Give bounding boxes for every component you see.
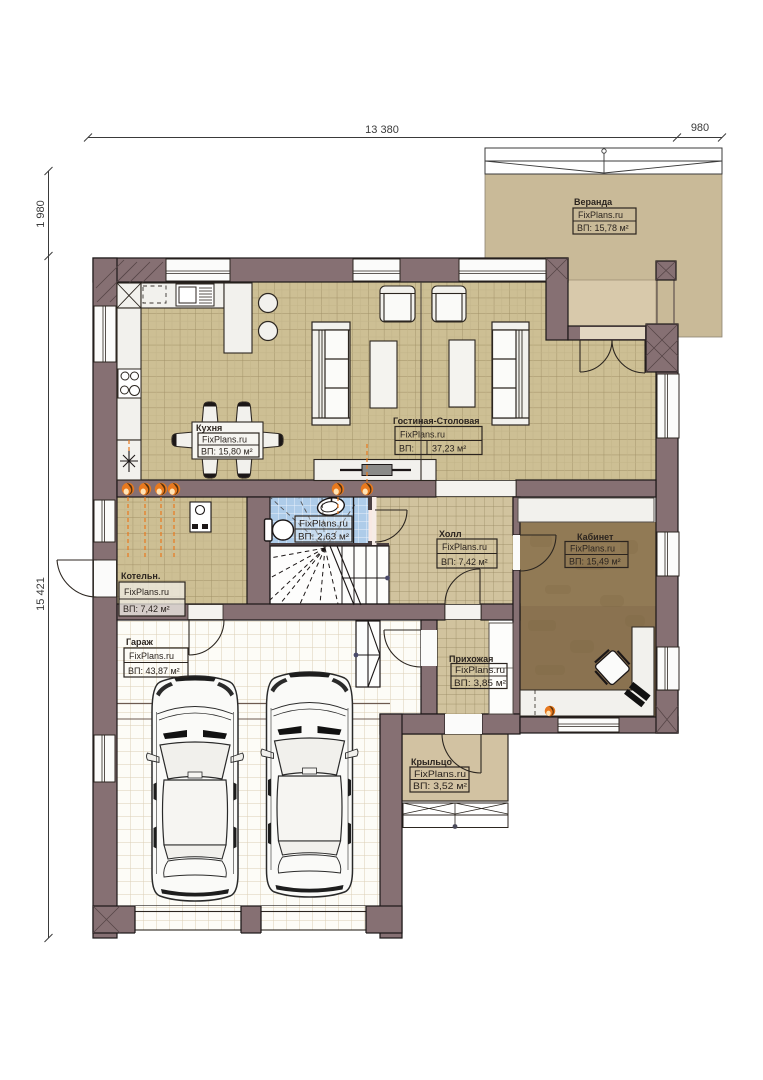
svg-text:Крыльцо: Крыльцо (411, 757, 452, 767)
svg-text:ВП: 3,52 м²: ВП: 3,52 м² (413, 781, 467, 791)
svg-text:15 421: 15 421 (35, 577, 47, 611)
svg-text:ВП: 43,87 м²: ВП: 43,87 м² (128, 666, 180, 676)
svg-text:FixPlans.ru: FixPlans.ru (570, 544, 615, 554)
svg-text:FixPlans.ru: FixPlans.ru (299, 519, 348, 529)
svg-text:FixPlans.ru: FixPlans.ru (202, 435, 247, 445)
svg-text:37,23 м²: 37,23 м² (432, 444, 466, 454)
svg-text:ВП: 7,42 м²: ВП: 7,42 м² (123, 604, 170, 614)
svg-text:ВП: 15,80 м²: ВП: 15,80 м² (201, 447, 253, 457)
svg-text:FixPlans.ru: FixPlans.ru (455, 665, 505, 675)
svg-text:Кабинет: Кабинет (577, 532, 614, 542)
svg-text:ВП: 15,49 м²: ВП: 15,49 м² (569, 557, 621, 567)
svg-text:ВП: 7,42 м²: ВП: 7,42 м² (441, 557, 488, 567)
svg-text:Веранда: Веранда (574, 197, 613, 207)
svg-text:ВП: 2,63 м²: ВП: 2,63 м² (298, 532, 349, 542)
svg-text:Гостиная-Столовая: Гостиная-Столовая (393, 416, 480, 426)
svg-text:ВП: 3,85 м²: ВП: 3,85 м² (454, 678, 506, 688)
svg-text:Прихожая: Прихожая (449, 654, 493, 664)
svg-text:FixPlans.ru: FixPlans.ru (414, 769, 466, 779)
svg-text:FixPlans.ru: FixPlans.ru (129, 651, 174, 661)
svg-text:FixPlans.ru: FixPlans.ru (400, 430, 445, 440)
svg-text:Кухня: Кухня (196, 423, 222, 433)
svg-text:Гараж: Гараж (126, 637, 153, 647)
svg-text:FixPlans.ru: FixPlans.ru (578, 210, 623, 220)
svg-text:FixPlans.ru: FixPlans.ru (442, 542, 487, 552)
svg-text:Котельн.: Котельн. (121, 571, 160, 581)
svg-text:980: 980 (691, 122, 709, 134)
svg-text:13 380: 13 380 (365, 124, 399, 136)
svg-text:Холл: Холл (439, 529, 462, 539)
svg-text:FixPlans.ru: FixPlans.ru (124, 587, 169, 597)
svg-text:ВП: 15,78 м²: ВП: 15,78 м² (577, 223, 629, 233)
svg-text:1 980: 1 980 (35, 200, 47, 228)
svg-text:ВП:: ВП: (399, 444, 414, 454)
